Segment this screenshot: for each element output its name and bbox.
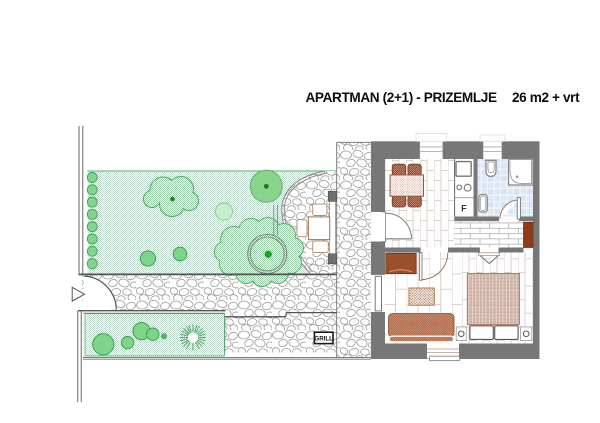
svg-text:F: F	[461, 203, 467, 213]
svg-text:APARTMAN (2+1) - PRIZEMLJE: APARTMAN (2+1) - PRIZEMLJE	[306, 90, 497, 105]
svg-text:GRILL: GRILL	[314, 335, 333, 342]
svg-text:26 m2 + vrt: 26 m2 + vrt	[512, 90, 580, 105]
